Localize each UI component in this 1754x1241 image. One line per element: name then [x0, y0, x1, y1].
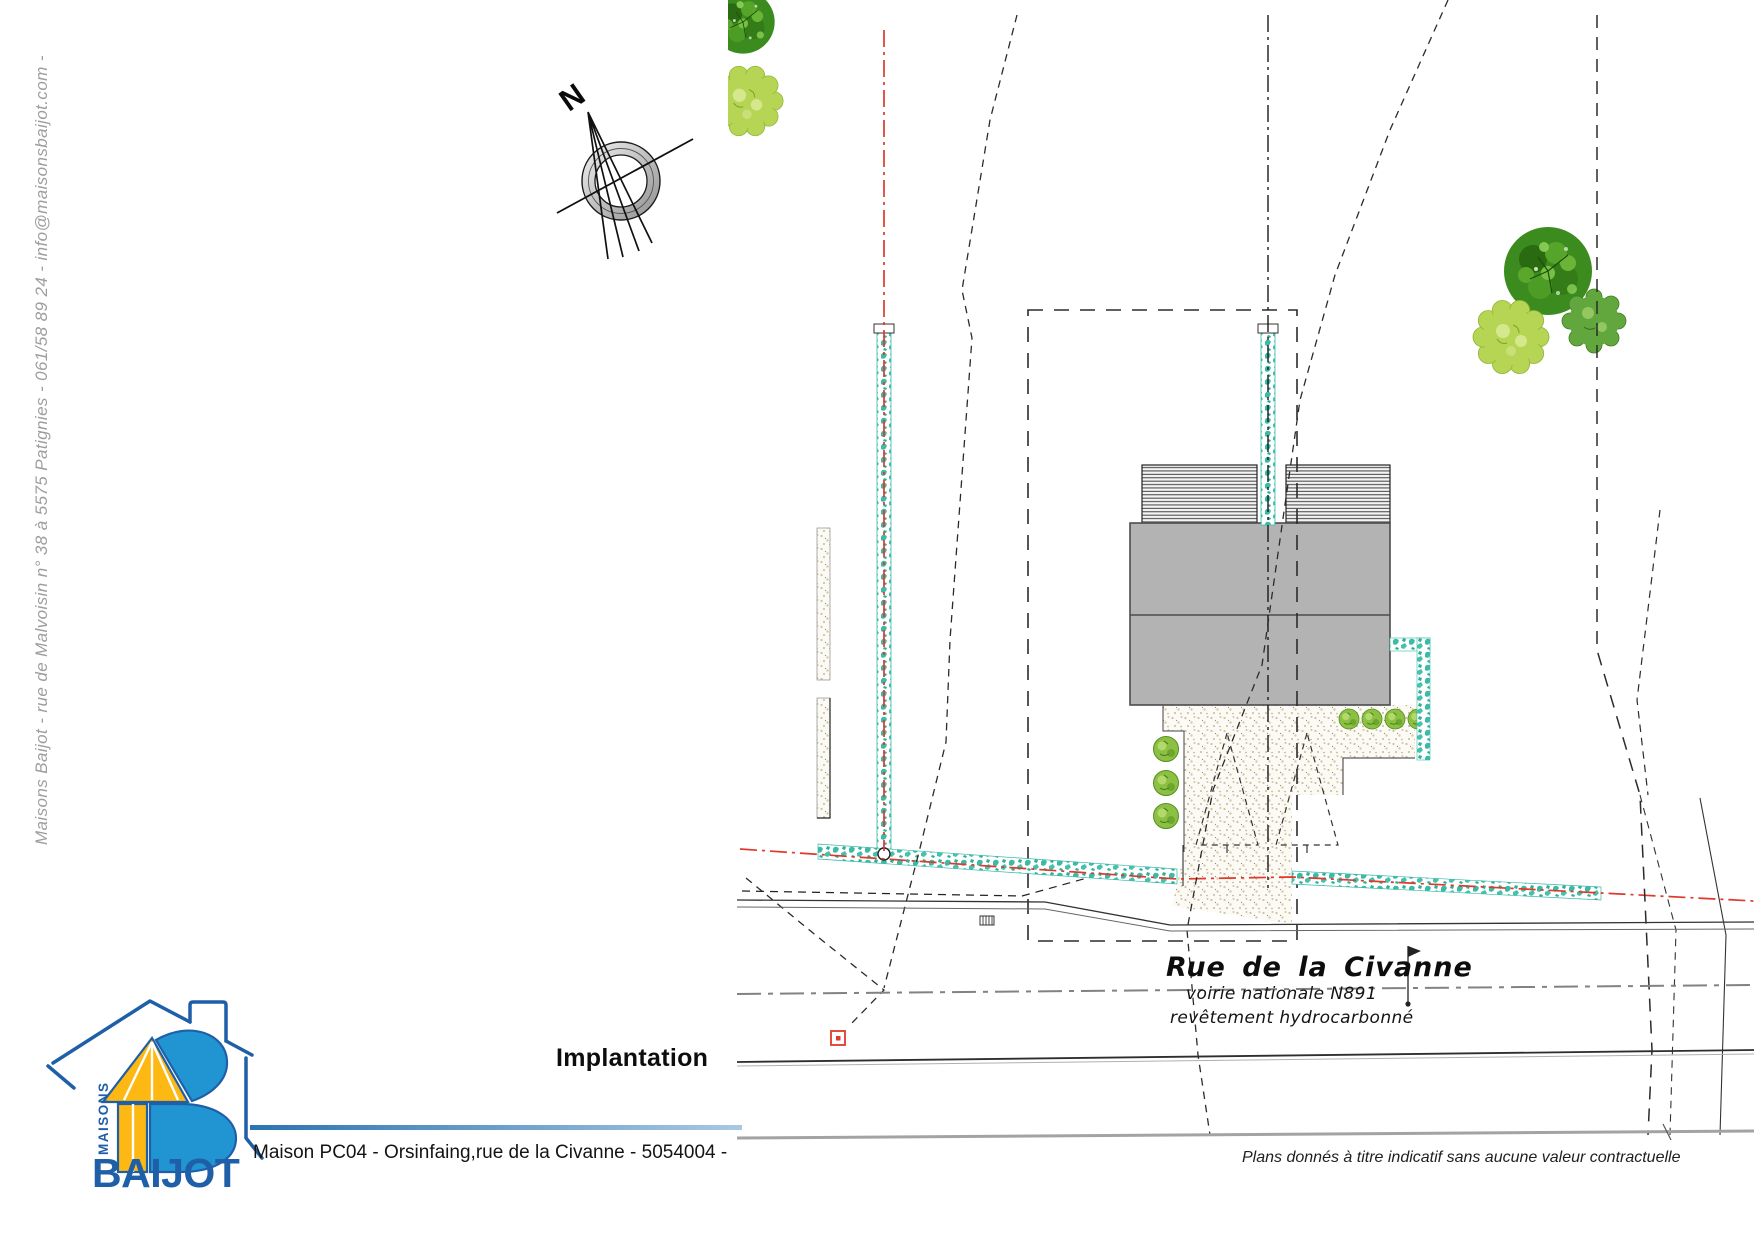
hedge-horizontal-right [1292, 871, 1601, 900]
bush-icon [1362, 709, 1382, 729]
parcel-line-dashed [1597, 15, 1652, 1135]
bush-icon [1339, 709, 1359, 729]
street-classification-label: voirie nationale N891 [1186, 984, 1377, 1004]
project-reference: Maison PC04 - Orsinfaing,rue de la Civan… [253, 1142, 727, 1164]
plan-title: Implantation [556, 1044, 708, 1073]
tree-icon [1473, 300, 1549, 373]
north-label: N [553, 77, 591, 119]
tree-icon [711, 0, 774, 54]
logo-baijot-text: BAIJOT [92, 1150, 239, 1197]
bush-icon [1385, 709, 1405, 729]
terrace-gravel-area [1163, 705, 1415, 924]
building-footprint [1130, 465, 1390, 705]
street-surface-label: revêtement hydrocarbonné [1170, 1008, 1414, 1028]
culvert-symbol [980, 916, 994, 925]
house-body [1130, 523, 1390, 705]
driveway-gravel-area [1172, 852, 1292, 924]
existing-wall-band [817, 528, 830, 818]
bush-icon [1154, 737, 1179, 762]
roof-hatch-right [1286, 465, 1390, 523]
hedge-vertical-left [877, 333, 891, 849]
parcel-line-dashed [884, 15, 1017, 988]
hedge-horizontal-left [818, 844, 1177, 884]
bush-icon [1154, 804, 1179, 829]
road-edge-line [737, 1131, 1754, 1138]
tree-icon [1562, 289, 1626, 353]
implantation-plan-page: Maisons Baijot - rue de Malvoisin n° 38 … [0, 0, 1754, 1241]
roof-hatch-left [1142, 465, 1257, 523]
parcel-line-dashed [1640, 795, 1676, 1135]
footer-divider [250, 1125, 742, 1130]
parcel-line [1700, 798, 1726, 1135]
compass-rose-icon: N [553, 77, 693, 259]
logo-maisons-text: MAISONS [96, 1081, 112, 1155]
street-name-label: Rue de la Civanne [1166, 952, 1473, 983]
red-marker-square [831, 1031, 845, 1045]
bush-icon [1154, 771, 1179, 796]
disclaimer-text: Plans donnés à titre indicatif sans aucu… [1242, 1149, 1680, 1167]
parcel-line-dashed [1637, 510, 1660, 795]
hedge-terrace-side [1417, 638, 1430, 760]
tree-icon [711, 66, 783, 136]
